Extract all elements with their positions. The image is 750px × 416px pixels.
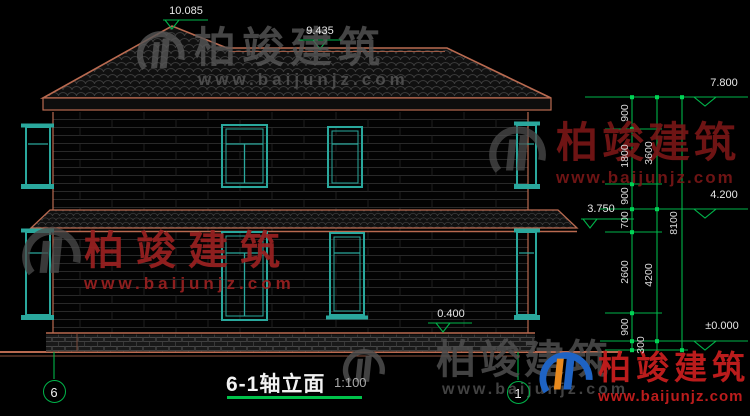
watermark-bottom-red: 柏竣建筑 www.baijunjz.com bbox=[598, 351, 750, 404]
watermark-brand: 柏竣建筑 bbox=[598, 351, 750, 384]
brand-logo-icon bbox=[342, 342, 388, 400]
eave-fascia bbox=[43, 98, 551, 110]
watermark-site: www.baijunjz.com bbox=[598, 389, 750, 404]
dim-700: 700 bbox=[619, 198, 631, 242]
elevation-plinth-label: 0.400 bbox=[428, 308, 474, 320]
brand-logo-icon bbox=[14, 226, 92, 290]
watermark-logo-right bbox=[488, 122, 550, 190]
brand-logo-icon bbox=[488, 122, 550, 190]
elevation-ground-label: ±0.000 bbox=[696, 320, 748, 332]
cad-elevation-drawing: 柏竣建筑 www.baijunjz.com 柏竣建筑 www.baijunjz.… bbox=[0, 0, 750, 416]
dim-900-c: 900 bbox=[619, 305, 631, 349]
axis-bubble-6: 6 bbox=[43, 380, 66, 403]
dim-1800: 1800 bbox=[619, 134, 631, 178]
watermark-top: 柏竣建筑 www.baijunjz.com bbox=[138, 27, 409, 88]
dim-4200: 4200 bbox=[643, 253, 655, 297]
elevation-peak-label: 10.085 bbox=[160, 5, 212, 17]
elevation-eave-label: 7.800 bbox=[700, 77, 748, 89]
title-underline bbox=[227, 396, 362, 399]
elevation-floor2-label: 4.200 bbox=[700, 189, 748, 201]
axis-bubble-1: 1 bbox=[507, 381, 530, 404]
dim-300: 300 bbox=[635, 323, 647, 367]
brand-logo-color bbox=[537, 345, 595, 407]
dim-2600: 2600 bbox=[619, 250, 631, 294]
watermark-left: 柏竣建筑 www.baijunjz.com bbox=[84, 231, 295, 292]
window-2f-left bbox=[21, 124, 54, 190]
watermark-site: www.baijunjz.com bbox=[198, 71, 409, 88]
watermark-brand: 柏竣建筑 bbox=[84, 231, 295, 271]
watermark-site: www.baijunjz.com bbox=[84, 275, 295, 292]
dim-8100: 8100 bbox=[668, 201, 680, 245]
dim-3600: 3600 bbox=[643, 131, 655, 175]
elevation-ridge-label: 9.435 bbox=[296, 25, 344, 37]
dim-900-a: 900 bbox=[619, 91, 631, 135]
drawing-scale: 1:100 bbox=[334, 375, 367, 390]
drawing-title: 6-1轴立面 bbox=[226, 368, 325, 398]
elevation-canopy-label: 3.750 bbox=[580, 203, 622, 215]
brand-logo-icon bbox=[136, 29, 188, 83]
watermark-logo-left bbox=[14, 226, 92, 290]
brand-logo-icon bbox=[537, 345, 595, 407]
